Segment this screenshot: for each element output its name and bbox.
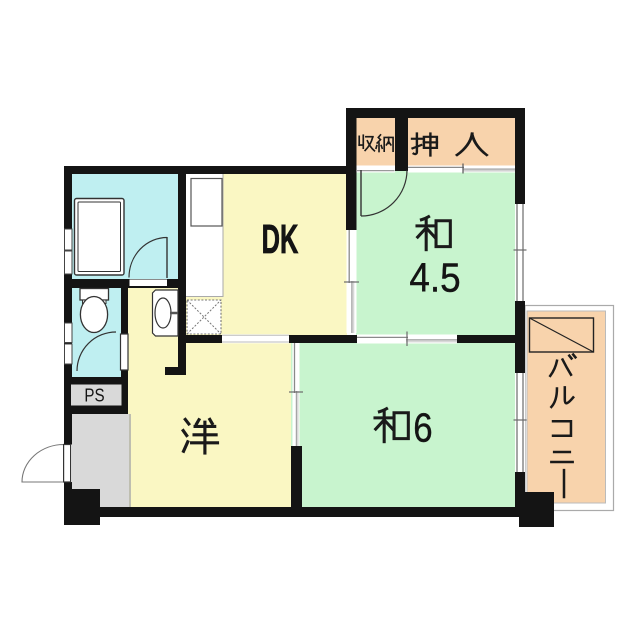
svg-text:6: 6 [413,406,432,451]
svg-text:PS: PS [84,385,104,406]
svg-text:DK: DK [262,217,299,263]
svg-text:4.5: 4.5 [409,256,460,301]
